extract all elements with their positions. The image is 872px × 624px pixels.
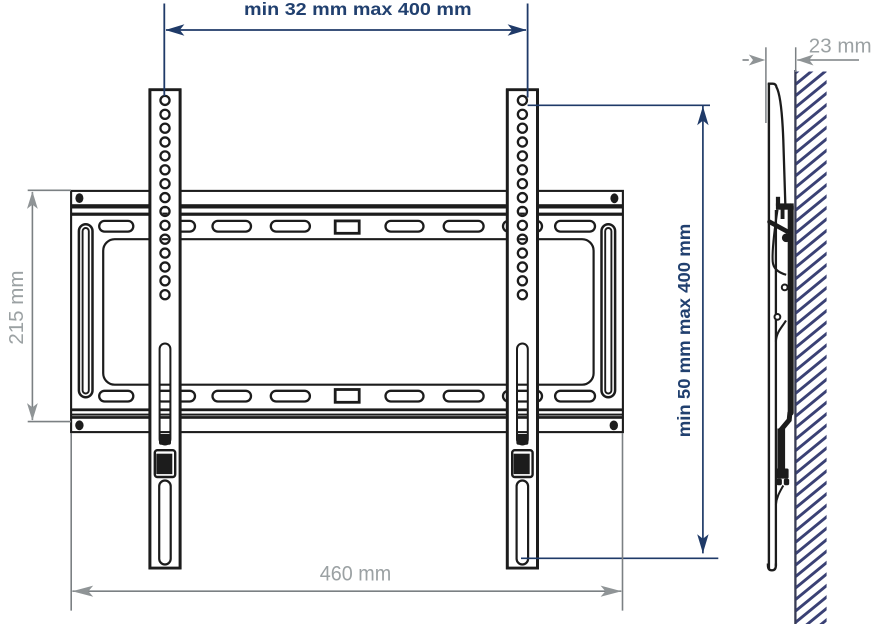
svg-text:min 32 mm max 400 mm: min 32 mm max 400 mm: [244, 0, 472, 19]
svg-text:460 mm: 460 mm: [320, 562, 391, 585]
svg-text:min 50 mm max 400 mm: min 50 mm max 400 mm: [674, 224, 694, 438]
svg-text:215 mm: 215 mm: [6, 271, 28, 345]
svg-text:23 mm: 23 mm: [809, 35, 872, 58]
